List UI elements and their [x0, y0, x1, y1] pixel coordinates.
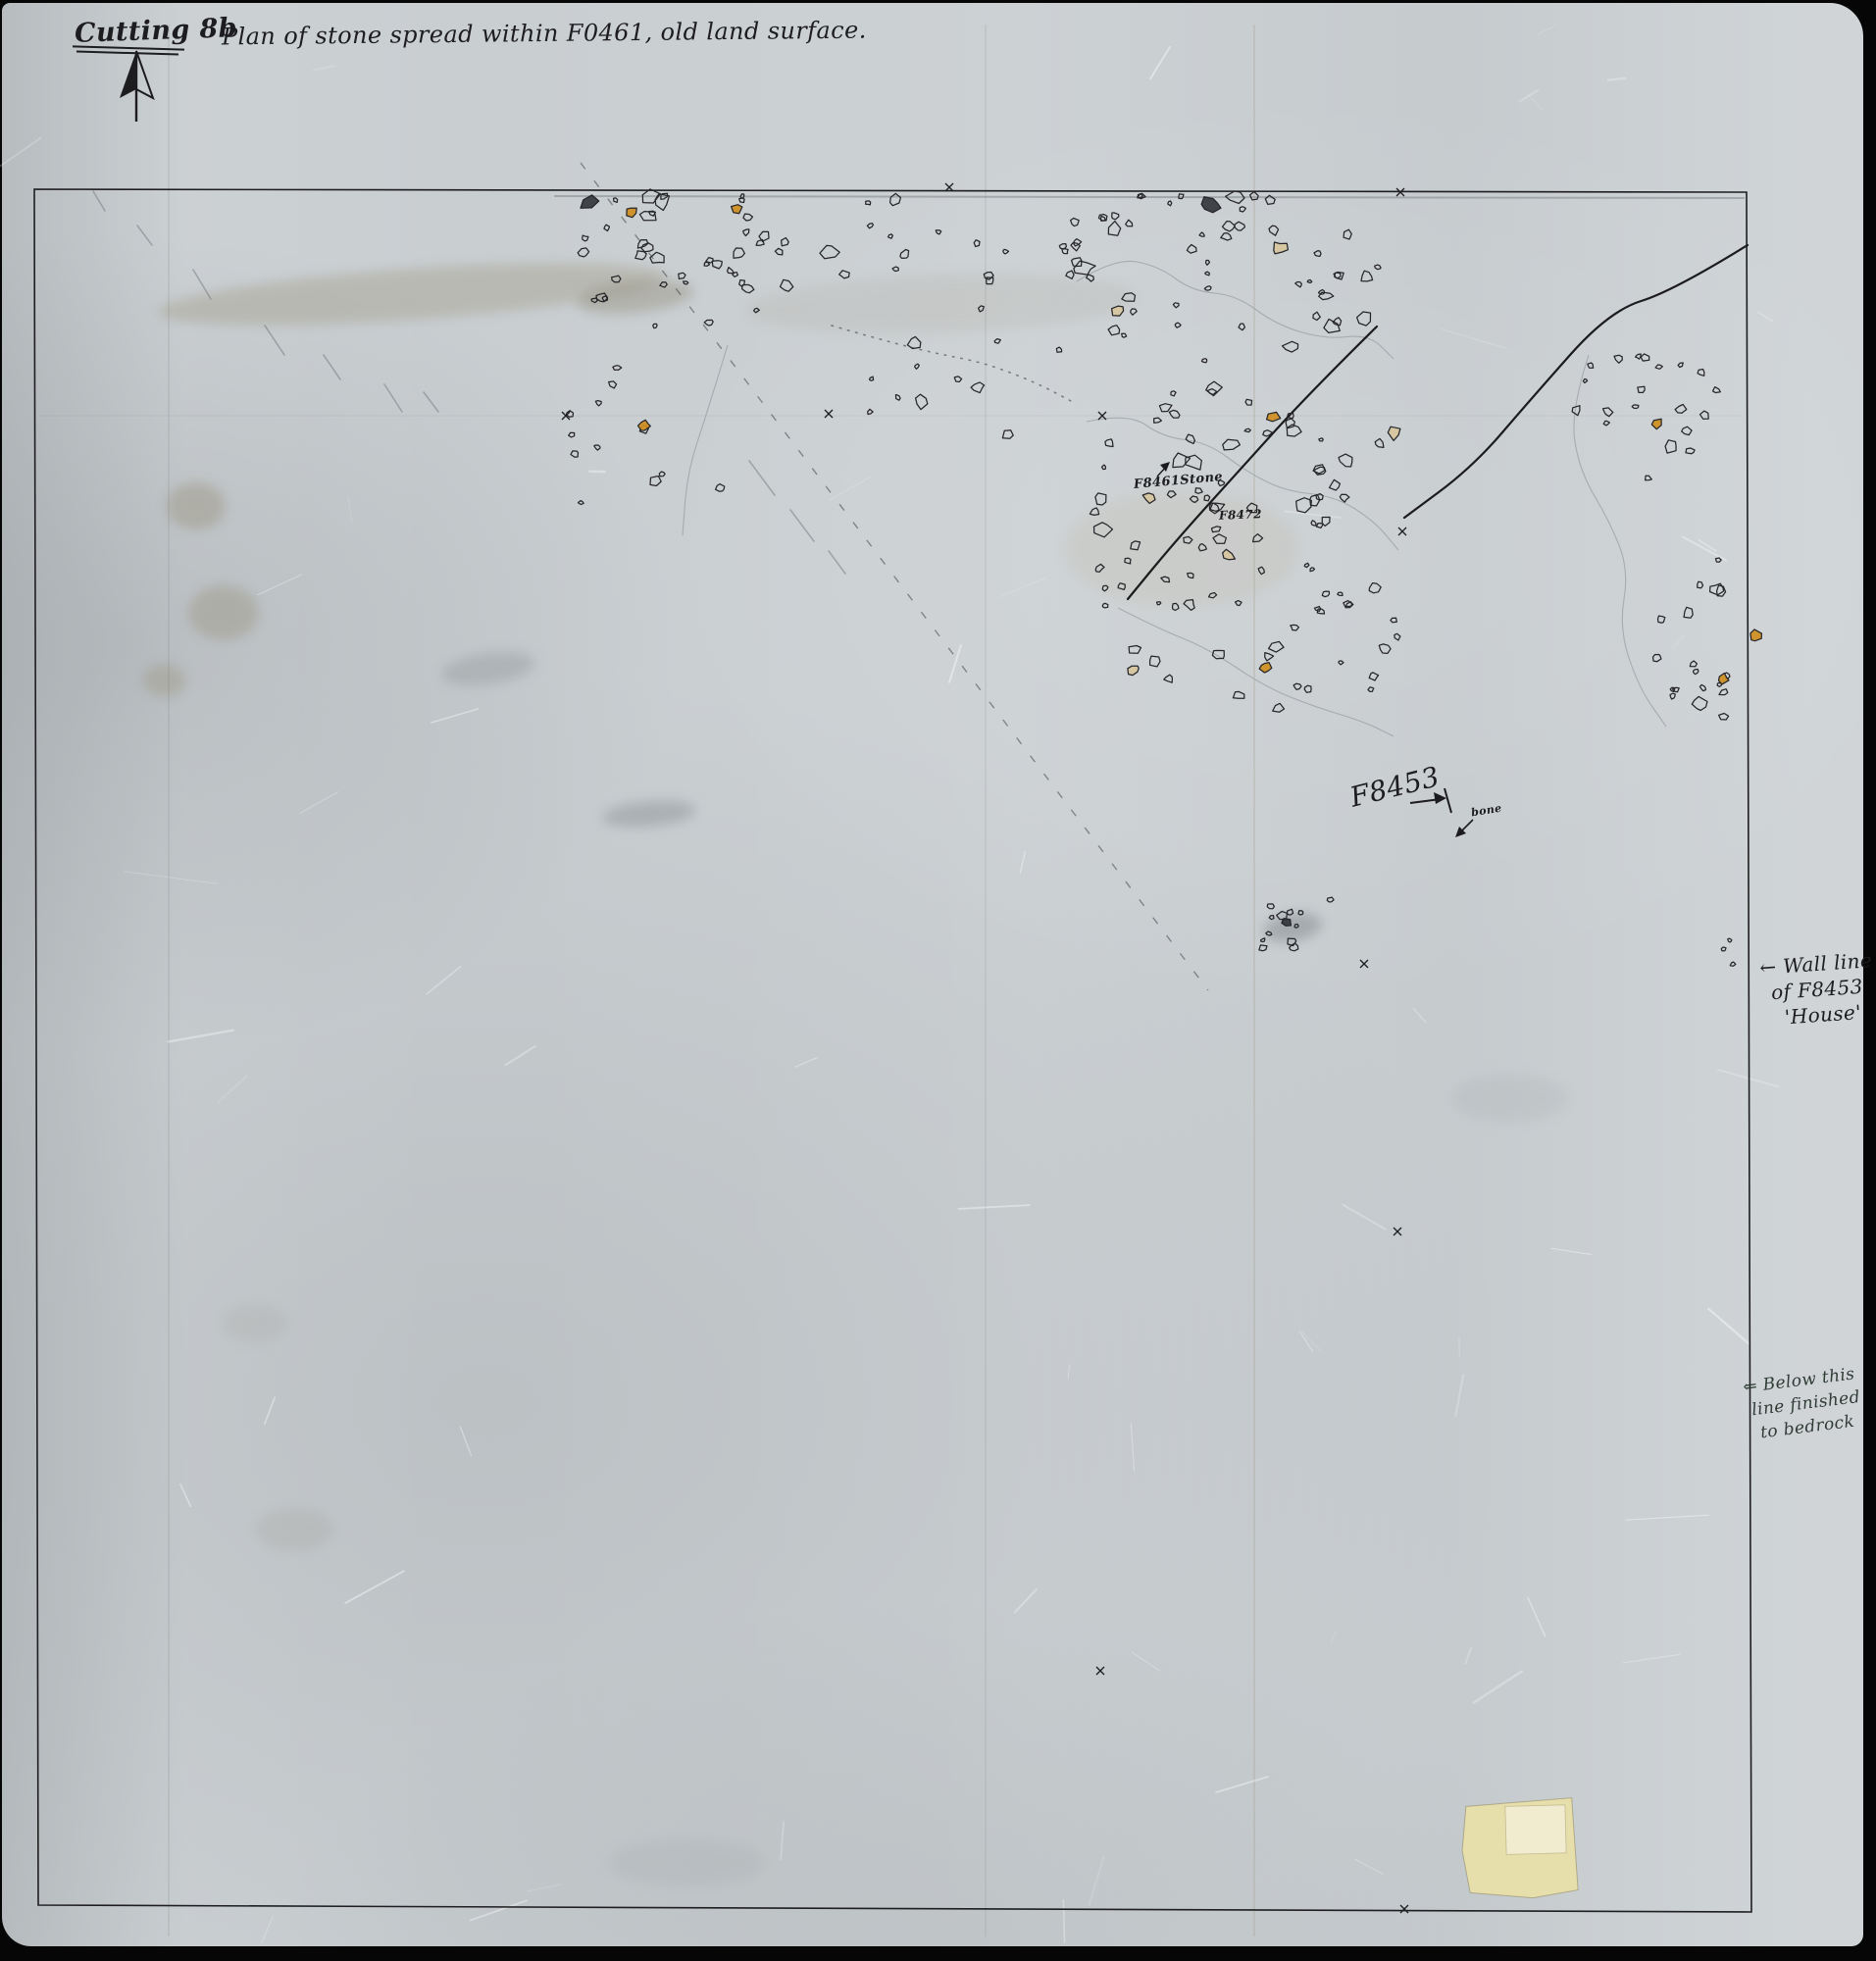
- stone: [1296, 498, 1312, 513]
- stone: [1603, 421, 1609, 426]
- stone: [1269, 641, 1284, 652]
- stone: [1614, 355, 1622, 363]
- stone: [604, 225, 610, 230]
- stone: [743, 229, 749, 236]
- stone: [1750, 629, 1762, 641]
- stone: [1212, 650, 1224, 658]
- stone: [1655, 365, 1662, 369]
- stone: [1588, 363, 1594, 368]
- stone: [1169, 410, 1180, 418]
- stone: [1641, 354, 1649, 361]
- stone: [1223, 222, 1236, 231]
- stone: [1173, 303, 1179, 308]
- stone: [1295, 282, 1302, 287]
- stone: [579, 501, 584, 505]
- stone: [1388, 427, 1400, 440]
- stone: [1700, 411, 1709, 419]
- stone: [1646, 476, 1652, 480]
- stone: [1168, 201, 1172, 206]
- stone: [1678, 363, 1683, 368]
- stone: [1291, 625, 1299, 630]
- stone: [1675, 405, 1687, 414]
- stone: [1071, 219, 1080, 226]
- stone: [1322, 591, 1329, 597]
- stone: [775, 248, 783, 255]
- stone: [1665, 440, 1676, 453]
- stone: [1394, 633, 1400, 640]
- stone: [1636, 354, 1642, 359]
- stone: [1304, 685, 1311, 692]
- stone: [868, 409, 873, 414]
- stone: [1721, 947, 1726, 951]
- stone: [1274, 242, 1289, 254]
- stone: [1345, 602, 1351, 607]
- stone: [1102, 465, 1106, 470]
- stone: [1245, 399, 1252, 405]
- stone: [1283, 341, 1298, 352]
- stone: [1056, 347, 1061, 352]
- stone: [1206, 261, 1210, 266]
- stone: [1122, 333, 1127, 337]
- scanned-plan-page: { "document": { "cutting_label": "Cuttin…: [0, 0, 1876, 1961]
- stone: [916, 394, 928, 409]
- north-arrow-icon: [110, 47, 161, 124]
- stone: [1690, 661, 1697, 667]
- stone: [1288, 909, 1293, 915]
- stone: [578, 248, 588, 257]
- stone: [1719, 674, 1730, 684]
- stone: [1699, 684, 1705, 690]
- stone: [1698, 370, 1704, 377]
- stone: [954, 377, 961, 382]
- stone: [1304, 563, 1309, 567]
- stone: [1728, 938, 1732, 942]
- stone: [888, 234, 893, 238]
- stone: [716, 484, 725, 492]
- stone: [1293, 683, 1301, 689]
- stone: [1273, 703, 1285, 712]
- stone: [569, 432, 575, 437]
- site-plan-drawing: [0, 0, 1876, 1961]
- stone: [915, 364, 920, 369]
- stone: [892, 267, 898, 271]
- stone: [866, 201, 871, 205]
- stone: [1205, 272, 1210, 276]
- stone: [1344, 229, 1351, 239]
- stone: [1223, 439, 1241, 450]
- stone: [1128, 666, 1139, 675]
- stone: [1368, 687, 1374, 692]
- stone: [1126, 220, 1133, 226]
- stone: [974, 240, 980, 247]
- stone: [1108, 222, 1120, 236]
- stone: [1269, 916, 1274, 920]
- stone: [1286, 419, 1294, 428]
- stone: [1235, 222, 1244, 230]
- stone: [1059, 244, 1066, 250]
- stone: [1202, 359, 1207, 363]
- stone: [571, 451, 579, 457]
- stone: [679, 273, 685, 278]
- stone: [756, 239, 764, 245]
- stone: [1682, 427, 1692, 434]
- stone: [734, 248, 744, 258]
- stone: [594, 445, 600, 450]
- stone: [1310, 568, 1314, 572]
- stone: [1719, 714, 1729, 721]
- stone: [1694, 670, 1699, 675]
- stone: [704, 320, 713, 326]
- stone: [936, 230, 940, 234]
- cutting-label: Cutting 8b: [75, 13, 238, 49]
- stone: [1638, 386, 1645, 392]
- stone: [1105, 439, 1113, 447]
- stone: [1583, 379, 1587, 383]
- stone: [1298, 911, 1303, 915]
- stone: [1338, 592, 1343, 595]
- stone: [1369, 673, 1378, 680]
- stone: [1670, 693, 1675, 699]
- stone: [583, 235, 588, 241]
- stone: [1730, 962, 1736, 966]
- stone: [1265, 653, 1274, 661]
- stone: [1311, 521, 1316, 526]
- stone: [1686, 448, 1695, 454]
- stone: [839, 271, 850, 278]
- stone: [1233, 691, 1243, 698]
- stone: [1369, 583, 1381, 593]
- stone: [1098, 215, 1107, 221]
- stone: [1259, 663, 1272, 673]
- stone: [1269, 226, 1279, 235]
- stone: [1713, 387, 1721, 393]
- stone: [1698, 581, 1703, 588]
- stone: [742, 284, 754, 292]
- stone: [1319, 438, 1323, 441]
- stone: [1307, 280, 1312, 283]
- stone: [1314, 251, 1321, 256]
- stone: [1175, 323, 1181, 327]
- stone: [1244, 428, 1250, 431]
- stone: [1261, 938, 1265, 942]
- stone: [1319, 292, 1334, 299]
- stone: [712, 261, 722, 269]
- stone: [1719, 689, 1728, 695]
- stone: [867, 224, 873, 228]
- wall-line-note: ← Wall line of F8453 'House': [1758, 947, 1876, 1031]
- stone: [1339, 661, 1344, 665]
- stone: [613, 366, 622, 370]
- stone: [1330, 479, 1341, 490]
- stone: [1651, 419, 1661, 429]
- stone: [1673, 687, 1680, 691]
- stone: [732, 205, 742, 214]
- stone: [907, 336, 921, 348]
- stone: [1159, 404, 1172, 412]
- stone: [1239, 324, 1244, 330]
- stone: [743, 214, 753, 221]
- stone: [994, 339, 1000, 344]
- stone: [1003, 249, 1009, 254]
- stone: [739, 198, 744, 203]
- stone: [728, 268, 735, 274]
- stone: [1339, 454, 1352, 467]
- stone: [1129, 646, 1141, 654]
- stone: [1322, 517, 1330, 526]
- stone: [659, 472, 665, 477]
- stone: [609, 381, 617, 388]
- stone: [1603, 408, 1613, 417]
- stone: [650, 477, 661, 486]
- stone: [1164, 675, 1173, 682]
- plan-border: [34, 189, 1751, 1912]
- stone: [1379, 644, 1391, 654]
- stone: [1267, 904, 1274, 909]
- stone: [1187, 245, 1196, 254]
- stone: [1131, 309, 1137, 315]
- tape-patch: [1461, 1797, 1579, 1899]
- stone: [1375, 438, 1384, 447]
- stone: [1240, 207, 1245, 212]
- stone: [1653, 655, 1661, 662]
- stone: [1340, 494, 1349, 502]
- stone: [781, 279, 793, 291]
- stone: [1071, 243, 1080, 251]
- stone: [971, 382, 985, 393]
- stain-marks: [143, 251, 1569, 1887]
- stone: [1324, 319, 1340, 332]
- stone: [1632, 405, 1639, 409]
- stone: [1199, 232, 1204, 236]
- stone: [1391, 618, 1396, 623]
- stone: [1204, 286, 1211, 290]
- stone: [1236, 601, 1242, 606]
- stone: [1095, 493, 1106, 505]
- stone: [1201, 197, 1221, 213]
- stone: [1375, 265, 1381, 270]
- stone: [1267, 412, 1281, 421]
- stone: [627, 208, 636, 217]
- stone: [1658, 616, 1665, 623]
- stone: [1171, 391, 1176, 396]
- stone: [1221, 233, 1232, 240]
- stone: [1357, 312, 1371, 326]
- stone: [1684, 607, 1693, 618]
- stone: [1259, 945, 1267, 951]
- stone: [1327, 897, 1334, 902]
- stone-polygons: [567, 189, 1762, 966]
- stone: [1112, 213, 1119, 220]
- stone: [684, 281, 688, 284]
- stone: [1154, 418, 1162, 423]
- stone: [1150, 656, 1160, 667]
- stone: [1715, 558, 1721, 562]
- feature-label-f8472: F8472: [1219, 507, 1262, 523]
- stone: [870, 377, 874, 380]
- stone: [614, 198, 618, 203]
- stone: [782, 238, 789, 246]
- stone: [890, 193, 901, 205]
- stone: [1361, 271, 1373, 281]
- stone: [1108, 326, 1120, 335]
- stone: [1112, 306, 1124, 316]
- stone: [1313, 312, 1320, 320]
- stone: [1692, 696, 1707, 710]
- stone: [1572, 406, 1580, 416]
- stone: [1186, 434, 1194, 443]
- stone: [1002, 430, 1013, 439]
- stone: [1102, 603, 1107, 608]
- stone: [653, 324, 657, 327]
- stone: [900, 250, 909, 259]
- stone: [820, 245, 839, 258]
- stone: [595, 401, 601, 406]
- stone: [896, 395, 901, 401]
- bedrock-note: ⇐ Below this line finished to bedrock: [1742, 1362, 1864, 1446]
